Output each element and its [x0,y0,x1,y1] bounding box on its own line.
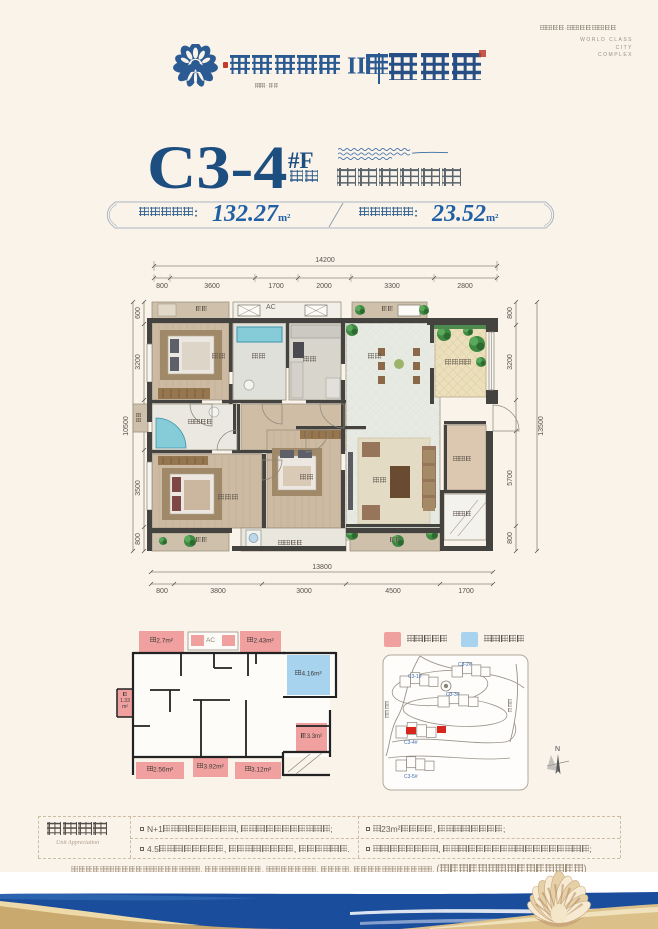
svg-text:13500: 13500 [538,416,545,436]
svg-text:1700: 1700 [268,283,284,290]
svg-text:800: 800 [507,532,514,544]
svg-text:3800: 3800 [210,588,226,595]
svg-text:3500: 3500 [135,480,142,496]
svg-text:1700: 1700 [458,588,474,595]
svg-text:13800: 13800 [312,564,332,571]
svg-text:2800: 2800 [457,283,473,290]
svg-text:3200: 3200 [135,354,142,370]
svg-text:600: 600 [135,307,142,319]
svg-text:10500: 10500 [123,416,130,436]
svg-text:14200: 14200 [315,257,335,264]
svg-text:800: 800 [156,588,168,595]
svg-text:3000: 3000 [296,588,312,595]
svg-text:3200: 3200 [507,354,514,370]
svg-text:800: 800 [156,283,168,290]
svg-text:3600: 3600 [204,283,220,290]
svg-text:5700: 5700 [507,470,514,486]
svg-text:800: 800 [135,533,142,545]
svg-text:2000: 2000 [316,283,332,290]
svg-text:800: 800 [507,307,514,319]
svg-text:4500: 4500 [385,588,401,595]
svg-text:3300: 3300 [384,283,400,290]
